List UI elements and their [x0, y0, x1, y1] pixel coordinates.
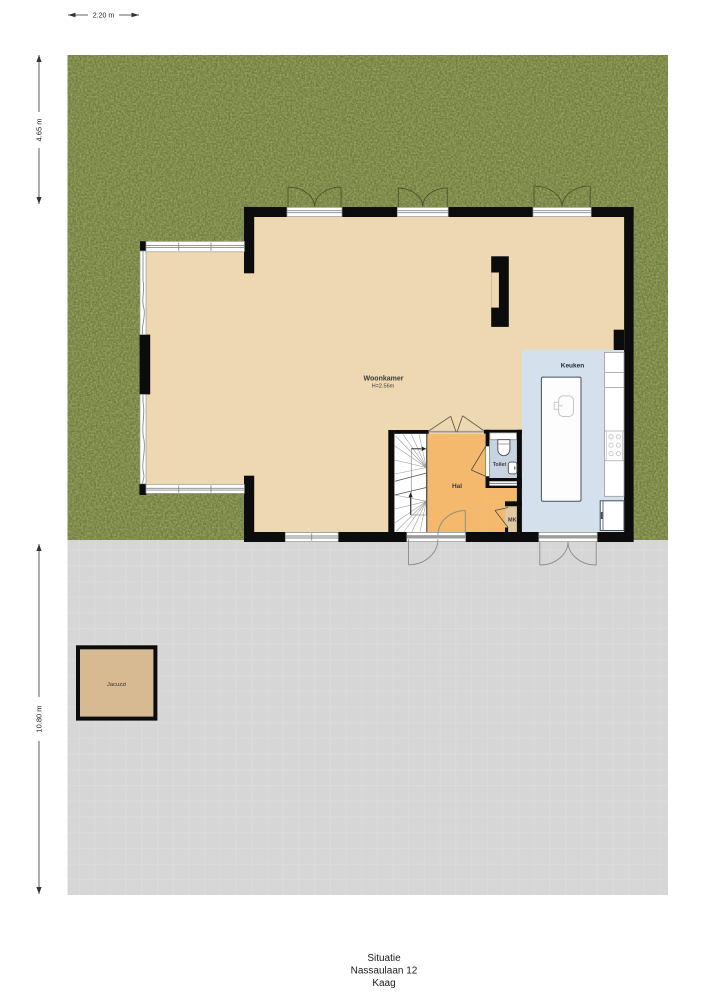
svg-text:Nassaulaan 12: Nassaulaan 12: [351, 966, 418, 977]
svg-text:Jacuzzi: Jacuzzi: [107, 682, 126, 688]
svg-text:Kaag: Kaag: [372, 978, 395, 989]
svg-text:Woonkamer: Woonkamer: [364, 376, 404, 383]
svg-text:4.65 m: 4.65 m: [35, 119, 44, 142]
svg-text:10.80 m: 10.80 m: [35, 705, 44, 732]
svg-text:MK: MK: [508, 518, 517, 524]
svg-text:Situatie: Situatie: [367, 953, 401, 964]
svg-text:H=2.56m: H=2.56m: [372, 384, 395, 390]
svg-text:Toilet: Toilet: [493, 462, 507, 468]
svg-text:2.20 m: 2.20 m: [93, 13, 115, 20]
svg-text:Keuken: Keuken: [561, 363, 585, 370]
svg-text:Hal: Hal: [452, 483, 462, 490]
